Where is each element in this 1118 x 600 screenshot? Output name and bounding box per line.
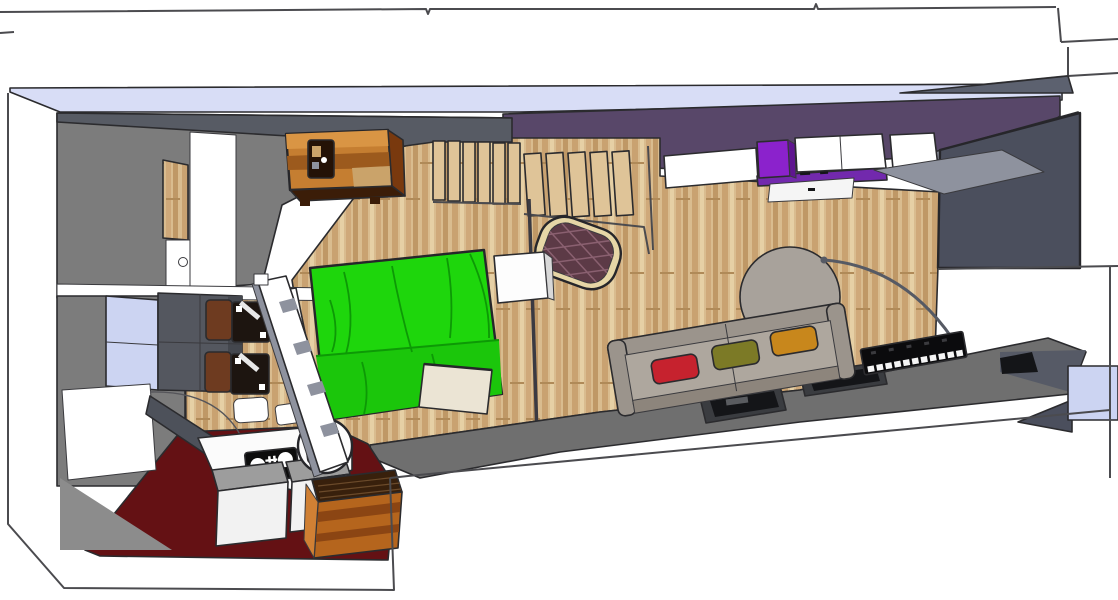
nightstand-cube [494, 252, 554, 303]
floorplan-svg [0, 0, 1118, 600]
violet-cabinet-cube [757, 140, 790, 178]
partition-cap [254, 274, 268, 285]
stool [233, 397, 269, 423]
floorplan-render [0, 0, 1118, 600]
dresser-patch [352, 166, 391, 188]
dining-chair-2 [205, 352, 269, 394]
dresser-leg [300, 199, 310, 206]
picture-frame-dot [321, 157, 327, 163]
kitchen-dresser [304, 470, 402, 558]
cream-cabinet [419, 364, 492, 414]
white-shelf-long [664, 148, 758, 188]
arc-lamp-tip [821, 257, 828, 264]
dresser [286, 130, 405, 206]
drawer-handle [808, 188, 815, 191]
roof-outline-lines [0, 4, 1118, 93]
corridor-small-door [166, 240, 190, 288]
stair-flight-right [524, 147, 633, 222]
kitchen-window [106, 296, 158, 390]
picture-frame-icon [308, 140, 334, 178]
corridor-white-column [190, 132, 236, 290]
island-box-1 [212, 462, 288, 546]
door-frame [62, 384, 156, 480]
dresser-leg [370, 197, 380, 204]
corridor-wood-door [163, 160, 188, 240]
picture-frame-inner2 [312, 162, 319, 169]
picture-frame-inner [312, 146, 321, 157]
